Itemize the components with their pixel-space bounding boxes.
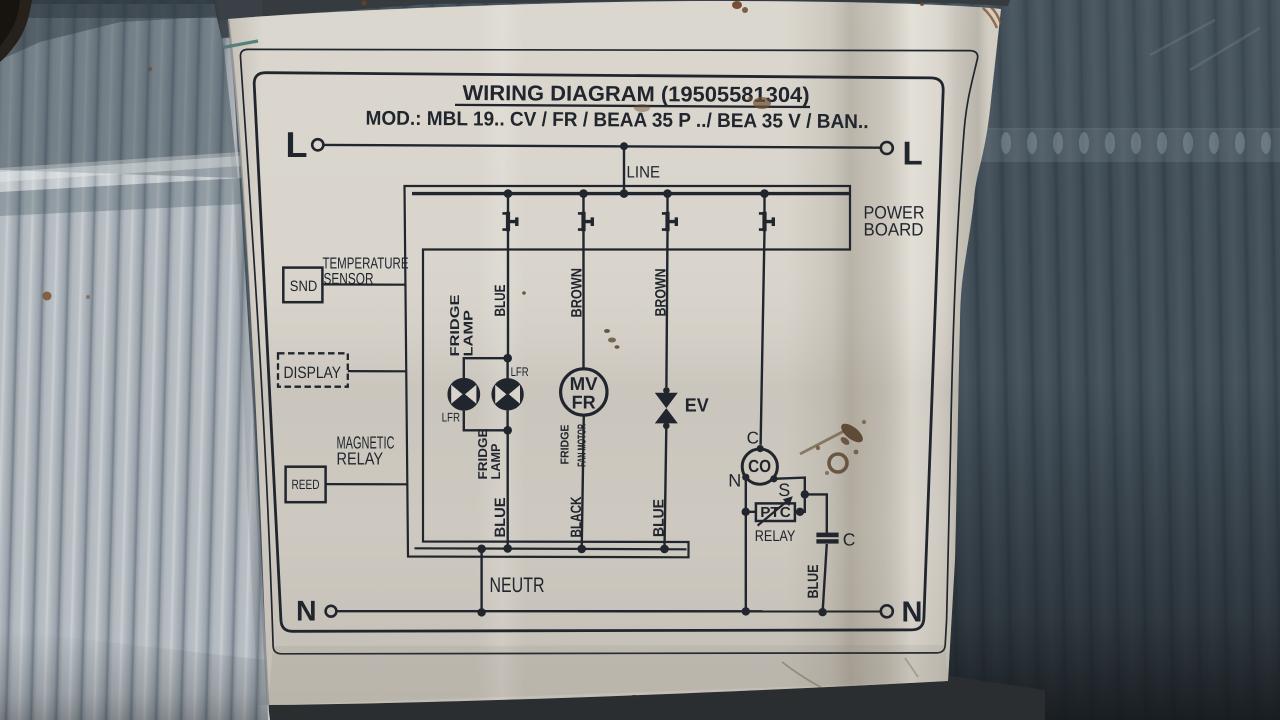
svg-text:L: L (903, 135, 923, 172)
svg-text:C: C (843, 529, 856, 549)
svg-text:BLUE: BLUE (492, 498, 509, 538)
svg-text:EV: EV (685, 396, 709, 417)
svg-text:BLACK: BLACK (568, 496, 585, 537)
svg-text:MOD.: MBL 19.. CV / FR / BEAA: MOD.: MBL 19.. CV / FR / BEAA 35 P ../ B… (365, 108, 868, 134)
svg-text:LAMP: LAMP (488, 443, 503, 479)
svg-text:C: C (747, 428, 759, 447)
svg-text:BLUE: BLUE (805, 565, 822, 599)
svg-text:BLUE: BLUE (492, 285, 509, 317)
svg-text:FAN MOTOR: FAN MOTOR (577, 423, 589, 466)
svg-text:N: N (902, 597, 923, 629)
svg-text:BOARD: BOARD (864, 220, 924, 240)
svg-text:LINE: LINE (627, 164, 661, 182)
svg-text:SND: SND (290, 278, 318, 295)
svg-text:DISPLAY: DISPLAY (284, 364, 342, 382)
svg-text:BROWN: BROWN (652, 269, 669, 317)
svg-text:BROWN: BROWN (568, 268, 585, 318)
svg-text:CO: CO (748, 456, 771, 476)
svg-text:NEUTR: NEUTR (490, 574, 545, 597)
svg-text:LAMP: LAMP (461, 309, 476, 356)
svg-text:FR: FR (572, 392, 596, 413)
svg-text:N: N (728, 470, 741, 490)
svg-text:RELAY: RELAY (337, 448, 384, 468)
svg-text:S: S (778, 480, 790, 500)
svg-text:SENSOR: SENSOR (324, 271, 374, 288)
svg-text:RELAY: RELAY (755, 528, 796, 545)
svg-text:REED: REED (292, 477, 320, 492)
svg-text:N: N (296, 596, 317, 628)
svg-text:LFR: LFR (442, 411, 461, 425)
svg-text:BLUE: BLUE (651, 499, 668, 537)
svg-text:L: L (286, 124, 308, 165)
svg-text:FRIDGE: FRIDGE (560, 424, 572, 464)
svg-text:LFR: LFR (511, 365, 529, 379)
svg-text:PTC: PTC (760, 505, 791, 521)
